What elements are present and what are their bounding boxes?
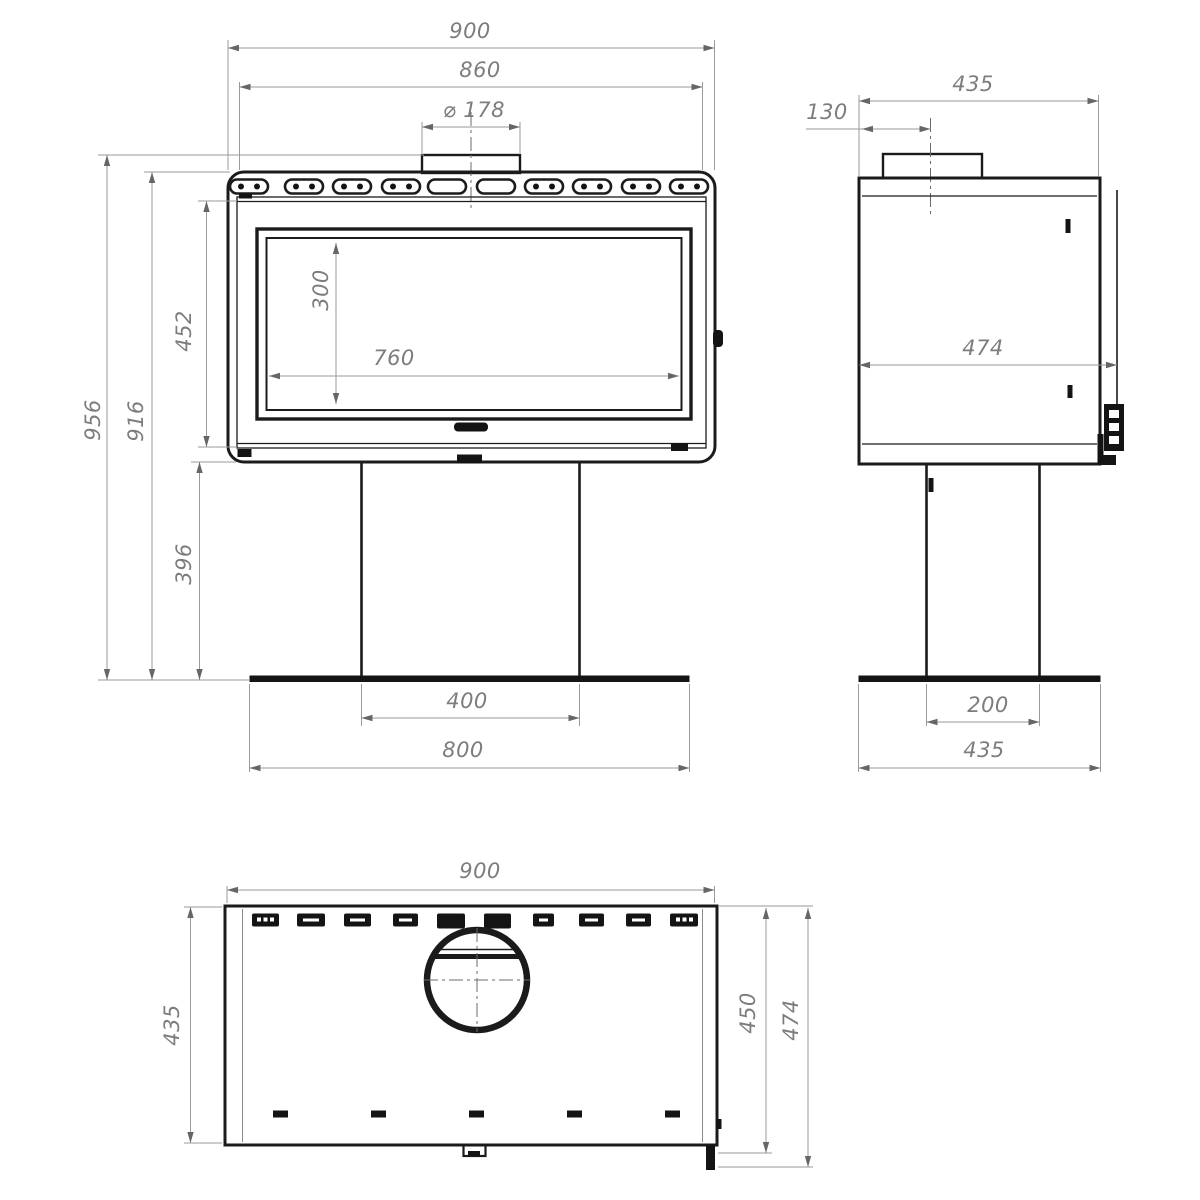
svg-text:860: 860 [459,58,501,82]
svg-text:900: 900 [459,859,501,883]
stove-dimension-drawing: 900 860 ⌀ 178 300 760 [0,0,1200,1200]
dim-front-glass-width: 760 [269,346,679,379]
front-vent-slots [230,180,708,199]
dim-front-pedestal-width: 400 [362,684,580,726]
front-glass-door [257,229,691,419]
svg-text:760: 760 [373,346,415,370]
svg-text:474: 474 [779,999,803,1041]
plan-body [225,906,717,1145]
svg-text:435: 435 [160,1004,184,1046]
dim-side-overall-depth: 435 [859,72,1099,176]
svg-text:400: 400 [446,689,488,713]
front-door-handle [713,330,723,347]
svg-text:435: 435 [952,72,994,96]
svg-text:916: 916 [124,400,148,442]
front-pedestal [362,462,580,676]
svg-text:452: 452 [172,310,196,352]
svg-text:474: 474 [962,336,1004,360]
dim-front-body-top-height: 916 [124,172,230,680]
plan-vent-slots [252,914,698,929]
dim-side-depth-with-handle: 474 [859,336,1117,368]
technical-drawing-page: 900 860 ⌀ 178 300 760 [0,0,1200,1200]
dim-side-flue-offset: 130 [806,100,931,132]
svg-text:⌀ 178: ⌀ 178 [443,98,505,122]
svg-text:956: 956 [81,399,105,441]
side-door-handle [1104,404,1124,451]
svg-text:130: 130 [806,100,848,124]
dim-front-glass-height: 300 [309,243,339,404]
side-pedestal [927,464,1040,676]
svg-text:800: 800 [442,738,484,762]
side-body [859,178,1100,464]
side-flue-collar [883,154,982,178]
dim-side-pedestal-depth: 200 [927,684,1040,726]
plan-handle-tab [706,1145,715,1170]
side-base-plate [859,676,1101,683]
plan-view: 900 435 450 474 [160,859,813,1170]
svg-text:396: 396 [172,543,196,585]
side-view: 435 130 474 200 435 [806,72,1124,772]
front-view: 900 860 ⌀ 178 300 760 [81,19,723,772]
svg-text:900: 900 [449,19,491,43]
svg-text:450: 450 [736,992,760,1034]
svg-text:300: 300 [309,269,333,311]
plan-front-ticks [273,1111,680,1118]
dim-plan-overall-width: 900 [227,859,715,903]
brand-logo [454,423,488,432]
side-bottom-bracket [1098,455,1116,465]
plan-flue-collar [424,928,530,1032]
svg-text:200: 200 [967,693,1009,717]
front-base-plate [250,676,690,683]
svg-text:435: 435 [963,738,1005,762]
dim-plan-body-depth: 435 [160,907,222,1143]
dim-front-pedestal-height: 396 [172,462,236,680]
